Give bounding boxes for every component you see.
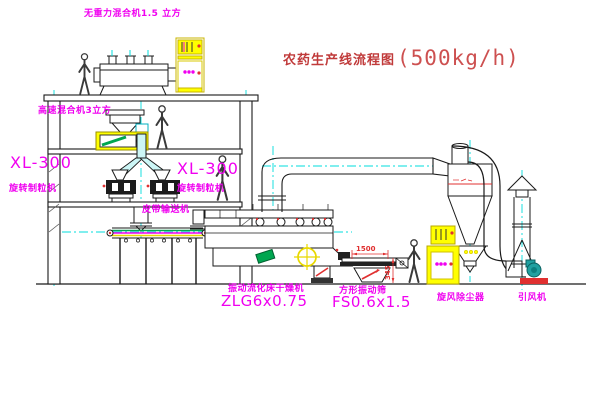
title-capacity: (500kg/h) — [397, 46, 520, 70]
label-cyclone: 旋风除尘器 — [437, 294, 485, 303]
label-granulator-right-name: 旋转制粒机 — [177, 185, 225, 194]
label-belt-conveyor: 皮带输送机 — [142, 206, 190, 215]
label-gravity-mixer: 无重力混合机1.5 立方 — [84, 10, 181, 19]
person-figure — [409, 240, 420, 282]
title-text: 农药生产线流程图 — [283, 49, 395, 68]
control-cabinet-1 — [176, 38, 204, 92]
label-speed-mixer: 高速混合机3立方 — [38, 107, 111, 116]
flow-diagram-canvas: 农药生产线流程图 (500kg/h) 无重力混合机1.5 立方 高速混合机3立方… — [0, 0, 600, 403]
label-fan: 引风机 — [518, 294, 547, 303]
label-granulator-left-model: XL-300 — [10, 155, 72, 171]
label-screen-model: FS0.6x1.5 — [332, 295, 411, 310]
dimension-screen-height: 345 — [385, 265, 392, 280]
belt-conveyor-drawing — [107, 207, 208, 284]
dimension-screen-length: 1500 — [356, 246, 375, 253]
control-cabinet-2 — [427, 226, 459, 284]
fluid-bed-dryer-drawing — [205, 204, 352, 283]
label-dryer-model: ZLG6x0.75 — [221, 294, 308, 309]
person-figure — [157, 106, 168, 148]
person-figure — [79, 54, 89, 94]
page-title: 农药生产线流程图 (500kg/h) — [283, 46, 520, 70]
label-granulator-left-name: 旋转制粒机 — [9, 185, 57, 194]
label-granulator-right-model: XL-300 — [177, 161, 239, 177]
